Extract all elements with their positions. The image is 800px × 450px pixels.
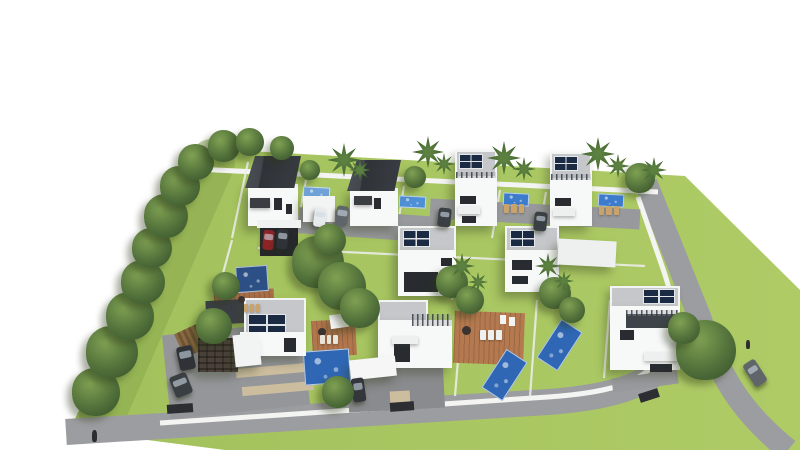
lounger [244, 304, 248, 312]
car-windshield [536, 216, 546, 222]
tree [300, 160, 320, 180]
entry-awning [458, 206, 480, 214]
pool [536, 319, 582, 371]
tree [668, 312, 700, 344]
car-windshield [353, 383, 364, 391]
car-windshield [316, 212, 326, 218]
tree [270, 136, 294, 160]
solar-panels [643, 289, 675, 304]
gable-roof [245, 156, 301, 188]
patio-table [462, 326, 471, 335]
aerial-render [0, 0, 800, 450]
window [441, 258, 452, 266]
car-windshield [747, 364, 760, 375]
window [620, 330, 634, 340]
tree [208, 130, 240, 162]
sun-loungers [244, 304, 260, 312]
entry-awning [553, 208, 575, 216]
window [274, 198, 282, 210]
garage-roof [557, 239, 616, 268]
solar-panels [459, 154, 483, 169]
planter [509, 317, 515, 326]
lounger [511, 204, 516, 213]
sun-loungers [504, 204, 524, 213]
carport-blade [232, 333, 261, 368]
tree [314, 224, 346, 256]
garage-roof-edge [257, 220, 301, 228]
car [437, 207, 452, 227]
lounger [606, 206, 611, 215]
tree [212, 272, 240, 300]
car-windshield [264, 234, 273, 240]
solar-panels [403, 230, 430, 247]
lounger [333, 335, 338, 344]
palm-tree [535, 253, 561, 279]
garage-door [404, 272, 438, 292]
lounger [250, 304, 254, 312]
gate [390, 401, 415, 412]
car-windshield [440, 212, 450, 218]
planter [500, 315, 506, 324]
palm-tree [641, 157, 667, 183]
palm-tree [512, 157, 536, 181]
lounger [256, 304, 260, 312]
car-windshield [338, 210, 348, 216]
window [460, 196, 476, 204]
patio-table [238, 296, 245, 303]
window [374, 198, 381, 209]
tree [456, 286, 484, 314]
tree [322, 376, 354, 408]
pool-covered [235, 265, 269, 293]
window [462, 216, 476, 223]
gate [638, 388, 660, 403]
entry-awning [392, 336, 418, 344]
car-street [742, 358, 768, 387]
car-windshield [179, 350, 192, 359]
car [533, 211, 548, 231]
objects-layer [0, 0, 800, 450]
car [276, 229, 289, 250]
window [650, 364, 672, 372]
lounger [614, 206, 619, 215]
lounger [519, 204, 524, 213]
tree [196, 308, 232, 344]
lounger [327, 335, 332, 344]
entry-awning [644, 352, 678, 361]
lounger [599, 206, 604, 215]
lounger [488, 330, 494, 340]
balcony-railing [412, 314, 452, 326]
solar-panels [510, 230, 535, 247]
palm-tree [327, 143, 361, 177]
palm-tree [349, 159, 371, 181]
solar-panels [554, 156, 578, 171]
entry-door [394, 342, 410, 362]
person [746, 340, 750, 349]
gate [167, 403, 194, 414]
palm-tree [606, 154, 630, 178]
sun-loungers [480, 330, 502, 340]
window [286, 204, 292, 214]
tree [340, 288, 380, 328]
person [92, 430, 97, 442]
sun-loungers [599, 206, 619, 215]
car-windshield [278, 233, 287, 239]
porch-awning [250, 198, 270, 208]
palm-tree [468, 272, 488, 292]
tree [236, 128, 264, 156]
car-red [262, 230, 275, 251]
tree [559, 297, 585, 323]
palm-tree [487, 141, 521, 175]
car-windshield [172, 377, 187, 387]
palm-tree [554, 271, 574, 291]
tree [404, 166, 426, 188]
window [555, 198, 571, 206]
driveway-corner [611, 369, 678, 392]
sun-loungers [320, 335, 338, 344]
porch-awning [354, 196, 372, 205]
lounger [480, 330, 486, 340]
window [512, 260, 532, 270]
pool-tarp [399, 195, 427, 208]
window [284, 338, 296, 352]
window [512, 276, 528, 284]
lounger [496, 330, 502, 340]
terrace-railing [626, 310, 678, 316]
lounger [504, 204, 509, 213]
lounger [320, 335, 325, 344]
palm-tree [433, 153, 455, 175]
